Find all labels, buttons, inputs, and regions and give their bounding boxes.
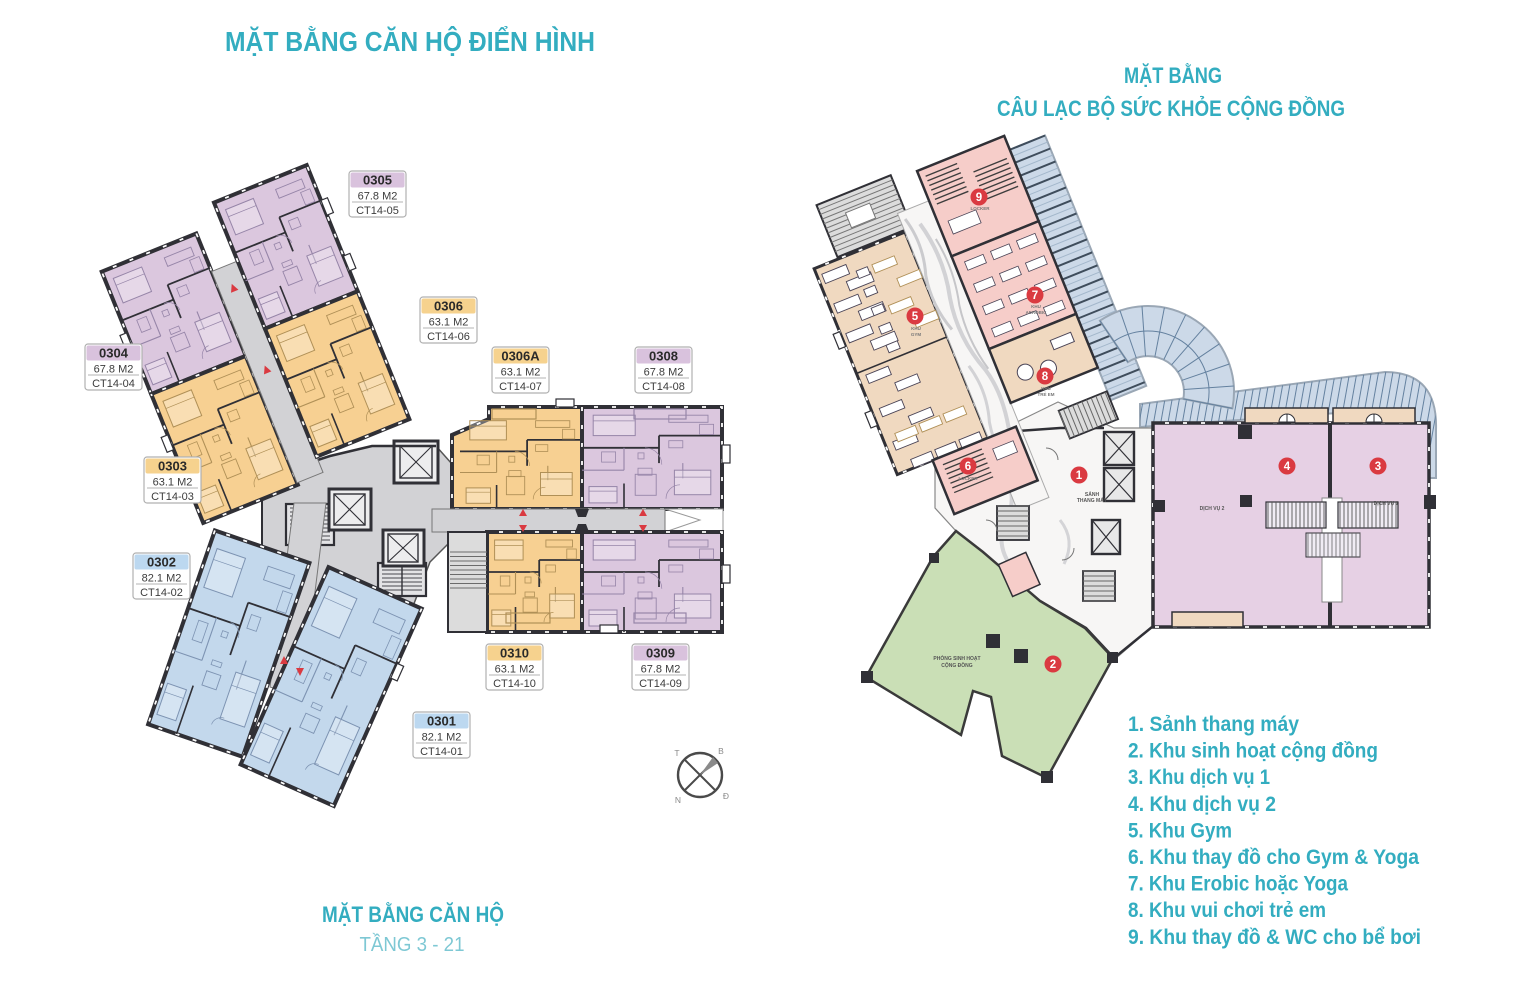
svg-text:CT14-09: CT14-09 <box>639 678 682 690</box>
svg-text:B: B <box>718 746 724 756</box>
svg-text:0305: 0305 <box>363 173 392 188</box>
svg-text:1. Sảnh thang máy: 1. Sảnh thang máy <box>1128 713 1299 736</box>
svg-text:CT14-04: CT14-04 <box>92 378 135 390</box>
svg-text:5. Khu Gym: 5. Khu Gym <box>1128 819 1232 842</box>
svg-text:KHU: KHU <box>1031 304 1041 309</box>
svg-text:0310: 0310 <box>500 646 529 661</box>
svg-text:63.1 M2: 63.1 M2 <box>501 367 541 379</box>
svg-text:0309: 0309 <box>646 646 675 661</box>
svg-text:SẢNH: SẢNH <box>1085 491 1100 498</box>
svg-text:KHU: KHU <box>1041 386 1051 391</box>
svg-text:0303: 0303 <box>158 459 187 474</box>
svg-text:CT14-07: CT14-07 <box>499 381 542 393</box>
svg-text:N: N <box>675 795 681 805</box>
svg-text:CT14-06: CT14-06 <box>427 331 470 343</box>
svg-text:8: 8 <box>1042 371 1049 383</box>
svg-text:3: 3 <box>1375 461 1381 473</box>
svg-text:LOCKER: LOCKER <box>959 476 979 481</box>
svg-text:82.1 M2: 82.1 M2 <box>422 732 462 744</box>
svg-text:MẶT BẰNG CĂN HỘ ĐIỂN HÌNH: MẶT BẰNG CĂN HỘ ĐIỂN HÌNH <box>225 25 595 57</box>
svg-text:0304: 0304 <box>99 346 129 361</box>
svg-text:6: 6 <box>965 461 971 473</box>
svg-text:MẶT BẰNG: MẶT BẰNG <box>1124 63 1222 88</box>
svg-text:63.1 M2: 63.1 M2 <box>153 477 193 489</box>
svg-text:CÂU LẠC BỘ SỨC KHỎE CỘNG ĐỒNG: CÂU LẠC BỘ SỨC KHỎE CỘNG ĐỒNG <box>997 96 1345 121</box>
svg-text:CT14-03: CT14-03 <box>151 491 194 503</box>
svg-text:9: 9 <box>976 192 982 204</box>
svg-text:82.1 M2: 82.1 M2 <box>142 573 182 585</box>
svg-text:CỘNG ĐỒNG: CỘNG ĐỒNG <box>941 661 973 669</box>
svg-text:0301: 0301 <box>427 714 456 729</box>
svg-text:CT14-01: CT14-01 <box>420 746 463 758</box>
svg-text:1: 1 <box>1076 470 1083 482</box>
svg-text:CT14-08: CT14-08 <box>642 381 685 393</box>
svg-text:67.8 M2: 67.8 M2 <box>94 364 134 376</box>
svg-text:PHÒNG SINH HOẠT: PHÒNG SINH HOẠT <box>933 654 980 662</box>
svg-text:DỊCH VỤ 1: DỊCH VỤ 1 <box>1374 501 1399 507</box>
svg-text:9. Khu thay đồ & WC cho bể bơi: 9. Khu thay đồ & WC cho bể bơi <box>1128 926 1421 949</box>
svg-text:2. Khu sinh hoạt cộng đồng: 2. Khu sinh hoạt cộng đồng <box>1128 740 1378 763</box>
svg-text:7. Khu Erobic hoặc Yoga: 7. Khu Erobic hoặc Yoga <box>1128 873 1348 896</box>
svg-text:0306A: 0306A <box>501 349 540 364</box>
svg-text:TRẺ EM: TRẺ EM <box>1037 391 1054 397</box>
svg-text:67.8 M2: 67.8 M2 <box>358 191 398 203</box>
svg-text:TẦNG 3 - 21: TẦNG 3 - 21 <box>360 933 465 956</box>
svg-text:63.1 M2: 63.1 M2 <box>495 664 535 676</box>
svg-text:0308: 0308 <box>649 349 678 364</box>
svg-text:Đ: Đ <box>723 791 729 801</box>
svg-text:0306: 0306 <box>434 299 463 314</box>
svg-text:6. Khu thay đồ cho Gym & Yoga: 6. Khu thay đồ cho Gym & Yoga <box>1128 846 1419 869</box>
svg-text:0302: 0302 <box>147 555 176 570</box>
svg-text:LOCKER: LOCKER <box>971 206 991 211</box>
svg-text:THANG MÁY: THANG MÁY <box>1077 497 1108 504</box>
svg-text:63.1 M2: 63.1 M2 <box>429 317 469 329</box>
svg-text:7: 7 <box>1032 290 1038 302</box>
svg-text:CT14-02: CT14-02 <box>140 587 183 599</box>
svg-text:4: 4 <box>1284 461 1291 473</box>
svg-text:CT14-05: CT14-05 <box>356 205 399 217</box>
svg-text:3. Khu dịch vụ 1: 3. Khu dịch vụ 1 <box>1128 766 1270 789</box>
svg-text:4. Khu dịch vụ 2: 4. Khu dịch vụ 2 <box>1128 793 1276 816</box>
svg-text:CT14-10: CT14-10 <box>493 678 536 690</box>
svg-text:67.8 M2: 67.8 M2 <box>644 367 684 379</box>
svg-text:67.8 M2: 67.8 M2 <box>641 664 681 676</box>
svg-text:AEROBIC: AEROBIC <box>1026 310 1048 315</box>
svg-text:5: 5 <box>912 311 919 323</box>
svg-text:2: 2 <box>1050 659 1056 671</box>
svg-text:MẶT BẰNG CĂN HỘ: MẶT BẰNG CĂN HỘ <box>322 902 504 927</box>
svg-text:8. Khu vui chơi trẻ em: 8. Khu vui chơi trẻ em <box>1128 899 1326 922</box>
svg-text:KHU: KHU <box>911 326 921 331</box>
svg-text:GYM: GYM <box>911 332 922 337</box>
svg-text:DỊCH VỤ 2: DỊCH VỤ 2 <box>1200 506 1225 512</box>
svg-text:T: T <box>674 748 679 758</box>
